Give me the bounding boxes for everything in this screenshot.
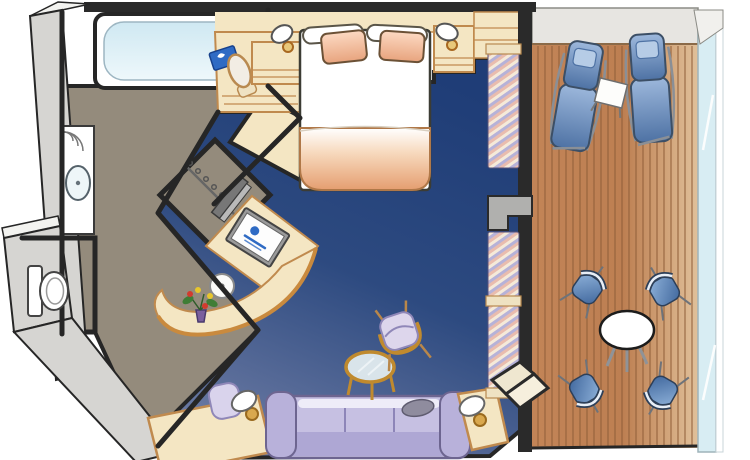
sofa-back xyxy=(272,432,466,456)
window-sill-2 xyxy=(486,296,521,306)
balcony-top-wall xyxy=(532,8,698,44)
window-sill xyxy=(486,44,521,54)
blanket xyxy=(300,128,430,190)
nightstand-left xyxy=(252,42,302,84)
queen-bed xyxy=(300,24,430,190)
sofa xyxy=(266,392,470,458)
floorplan-canvas xyxy=(0,0,750,460)
deck-bottom-edge xyxy=(532,446,698,448)
suite-floorplan xyxy=(0,0,750,460)
pillow-right xyxy=(379,30,425,62)
sink-drain xyxy=(76,181,80,185)
pillow-left xyxy=(321,30,368,64)
sofa-armrest-left xyxy=(266,392,296,458)
top-wall xyxy=(84,2,536,12)
railing-cap xyxy=(716,12,723,452)
dining-table xyxy=(600,311,654,372)
balcony xyxy=(532,8,723,452)
